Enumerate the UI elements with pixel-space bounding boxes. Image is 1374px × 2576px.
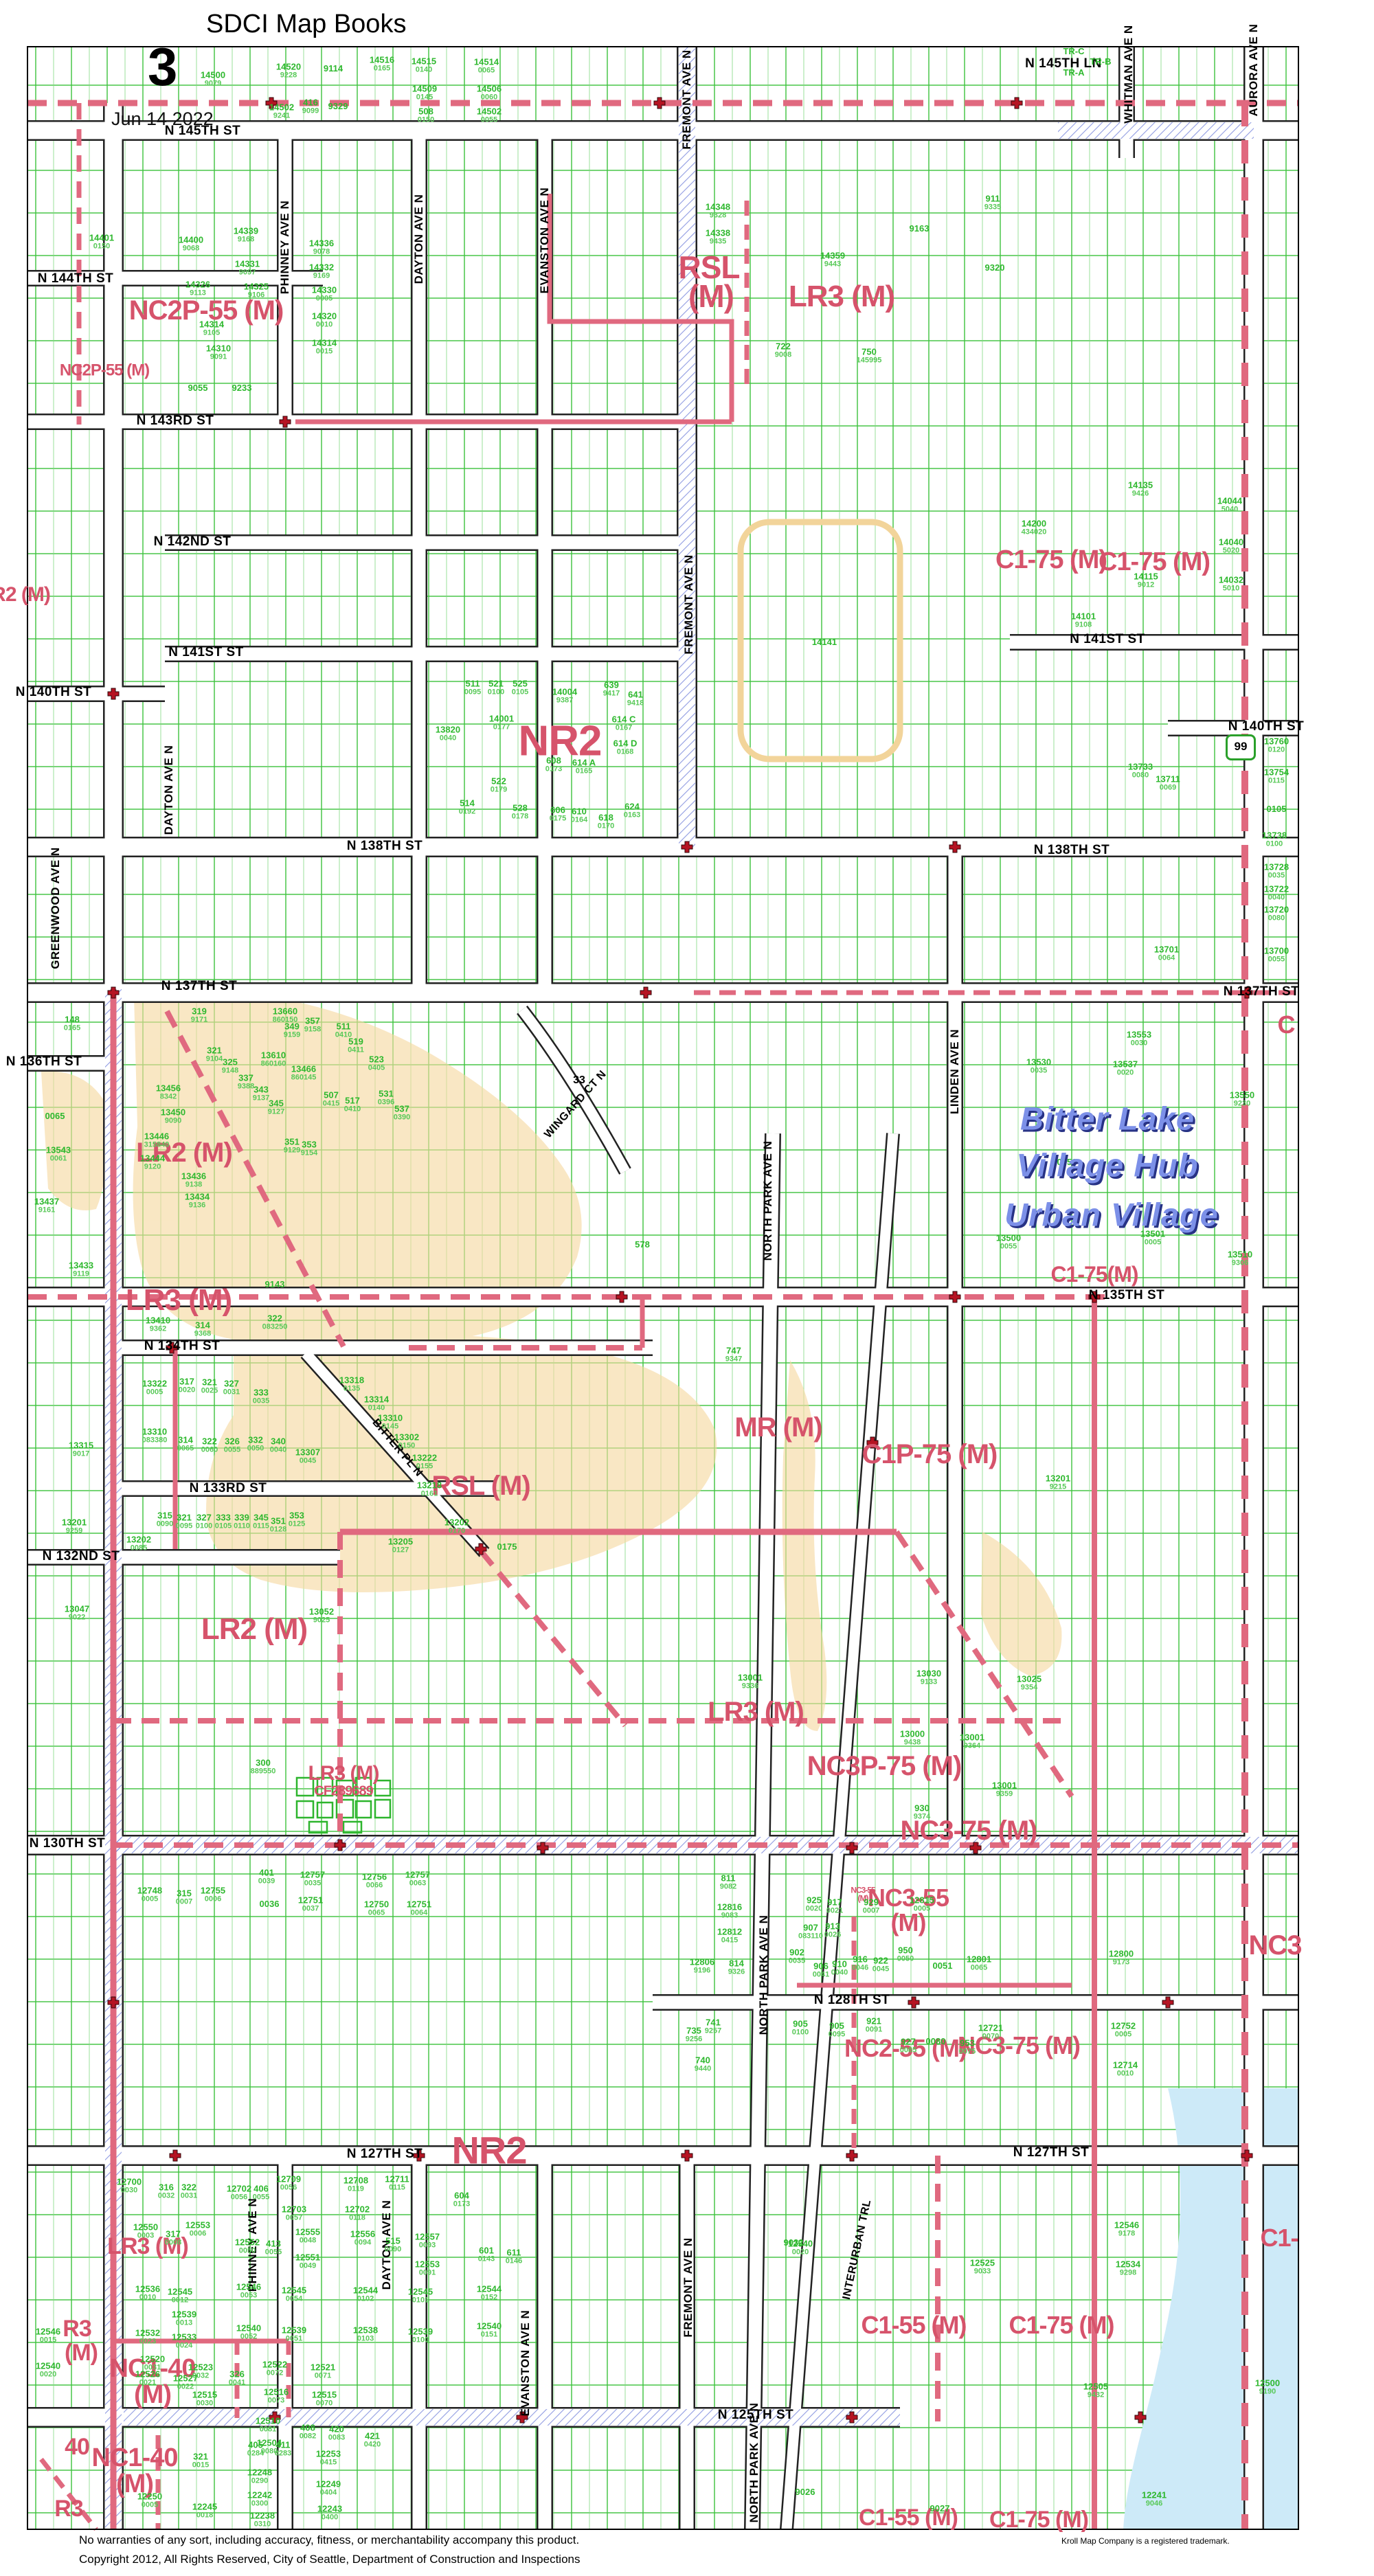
map-date: Jun 14 2022 [111,109,214,130]
disclaimer-line-1: No warranties of any sort, including acc… [79,2533,579,2547]
page-title: SDCI Map Books [206,10,406,39]
disclaimer-line-2: Copyright 2012, All Rights Reserved, Cit… [79,2553,581,2566]
trademark-note: Kroll Map Company is a registered tradem… [1061,2536,1230,2546]
map-book-page: { "header": { "title": "SDCI Map Books",… [0,0,1374,2576]
page-number: 3 [148,36,177,98]
zoning-map-canvas [0,0,1374,2576]
